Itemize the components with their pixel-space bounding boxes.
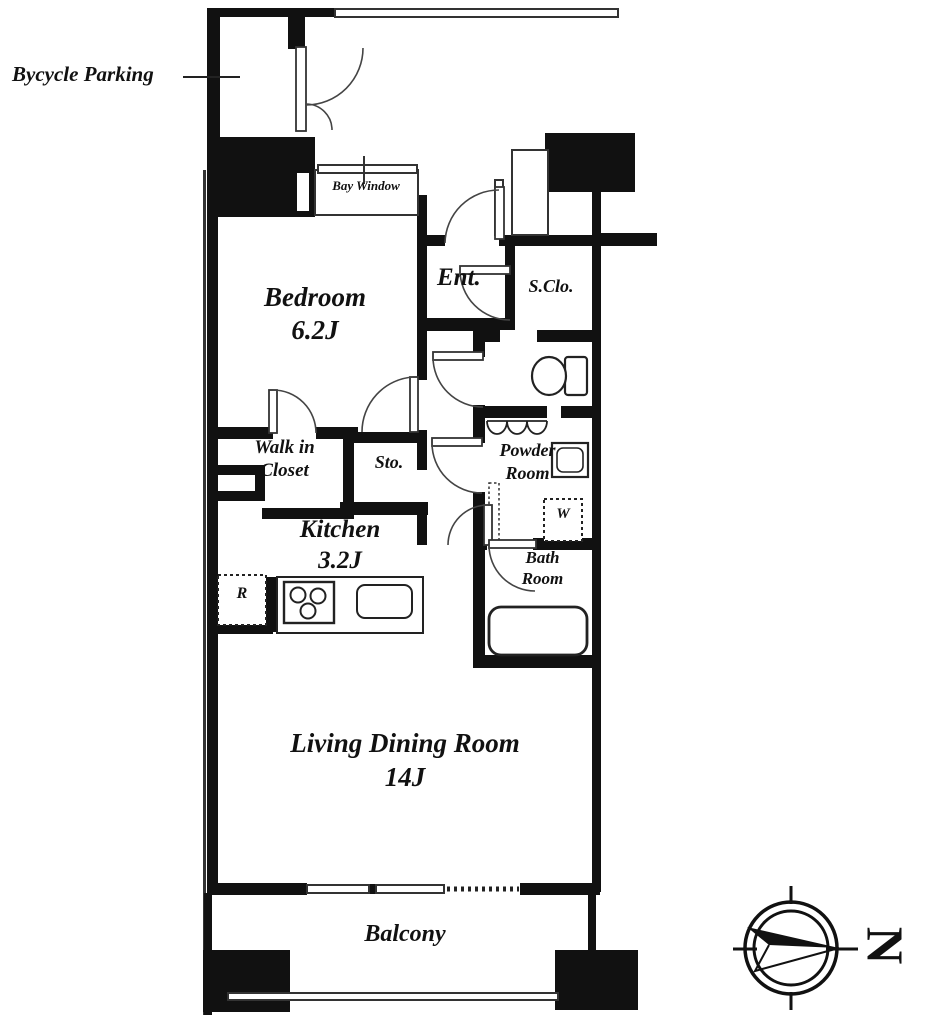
- bedroom-size-label: 6.2J: [230, 316, 400, 344]
- sink-icon: [357, 585, 412, 618]
- powder-room-label-2: Room: [485, 464, 570, 483]
- bay-window-glazing: [318, 165, 417, 173]
- corridor-railing: [335, 9, 618, 17]
- toilet-icon: [532, 357, 587, 395]
- bycycle-parking-label: Bycycle Parking: [12, 63, 154, 85]
- bedroom-door-leaf: [410, 377, 418, 432]
- vanity-counter-icon: [487, 421, 547, 434]
- bath-room-label-1: Bath: [500, 549, 585, 567]
- entry-porch-wall: [512, 150, 548, 235]
- bath-door-leaf: [489, 540, 536, 548]
- walk-in-closet-label-2: Closet: [222, 461, 347, 481]
- bath-room-label-2: Room: [500, 570, 585, 588]
- living-dining-size-label: 14J: [230, 763, 580, 791]
- kitchen-size-label: 3.2J: [275, 548, 405, 574]
- sliding-window-panel-left: [307, 885, 369, 893]
- washroom-hall-door-leaf: [484, 505, 492, 545]
- bicycle-door-arc-small: [306, 104, 332, 130]
- bedroom-door-arc: [362, 377, 413, 432]
- walk-in-closet-label-1: Walk in: [222, 438, 347, 458]
- wic-door-leaf: [269, 390, 277, 433]
- bicycle-door-leaf: [296, 47, 306, 131]
- kitchen-counter-icon: [277, 577, 423, 633]
- washer-label: W: [549, 507, 577, 523]
- bedroom-label: Bedroom: [230, 283, 400, 311]
- wic-door-arc: [273, 390, 316, 433]
- shoe-closet-label: S.Clo.: [512, 277, 590, 296]
- entrance-label: Ent.: [437, 265, 481, 291]
- living-dining-label: Living Dining Room: [230, 729, 580, 757]
- floor-plan: Bycycle Parking Bay Window Bedroom 6.2J …: [0, 0, 929, 1024]
- compass-icon: [733, 886, 858, 1010]
- kitchen-label: Kitchen: [275, 517, 405, 543]
- balcony-railing: [228, 993, 558, 1000]
- balcony-label: Balcony: [330, 922, 480, 947]
- powder-door-leaf: [432, 438, 482, 446]
- sliding-window-panel-right: [376, 885, 444, 893]
- compass-north-letter: N: [855, 920, 914, 972]
- bathtub-icon: [489, 607, 587, 655]
- bicycle-door-arc: [306, 48, 363, 105]
- bay-window-label: Bay Window: [316, 179, 416, 193]
- toilet-door-leaf: [433, 352, 483, 360]
- storage-label: Sto.: [358, 453, 420, 472]
- floor-plan-drawing: [0, 0, 929, 1024]
- entrance-door-leaf: [495, 187, 504, 239]
- walls: [203, 8, 657, 1015]
- powder-room-label-1: Powder: [485, 441, 570, 460]
- refrigerator-label: R: [218, 586, 266, 603]
